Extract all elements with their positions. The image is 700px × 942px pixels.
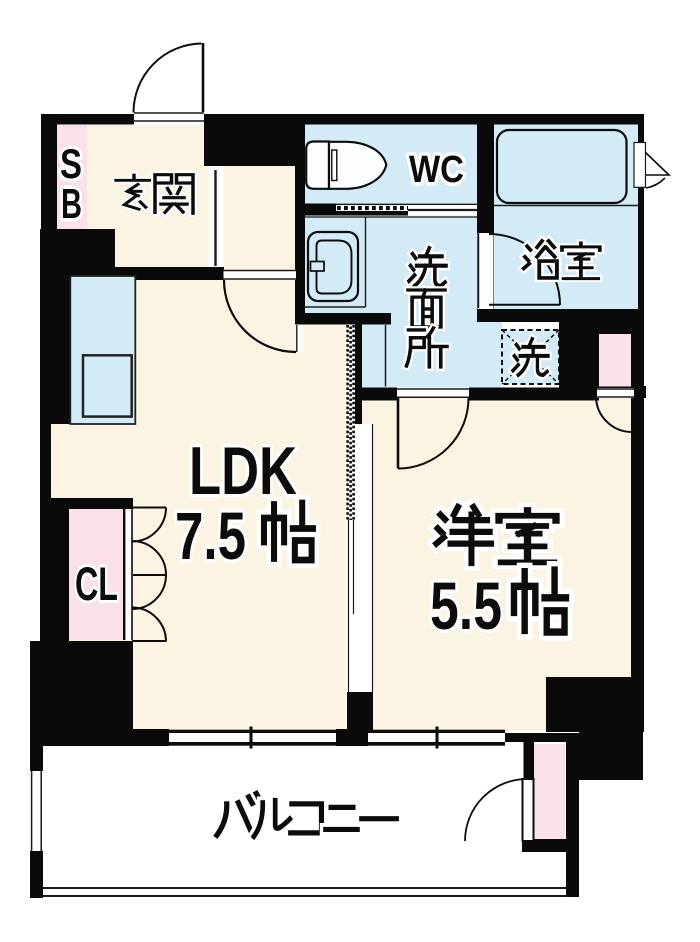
svg-text:7.5: 7.5	[175, 499, 246, 574]
svg-text:B: B	[61, 180, 82, 227]
svg-text:5.5: 5.5	[430, 569, 502, 644]
svg-text:WC: WC	[409, 149, 464, 191]
svg-text:CL: CL	[75, 557, 118, 610]
